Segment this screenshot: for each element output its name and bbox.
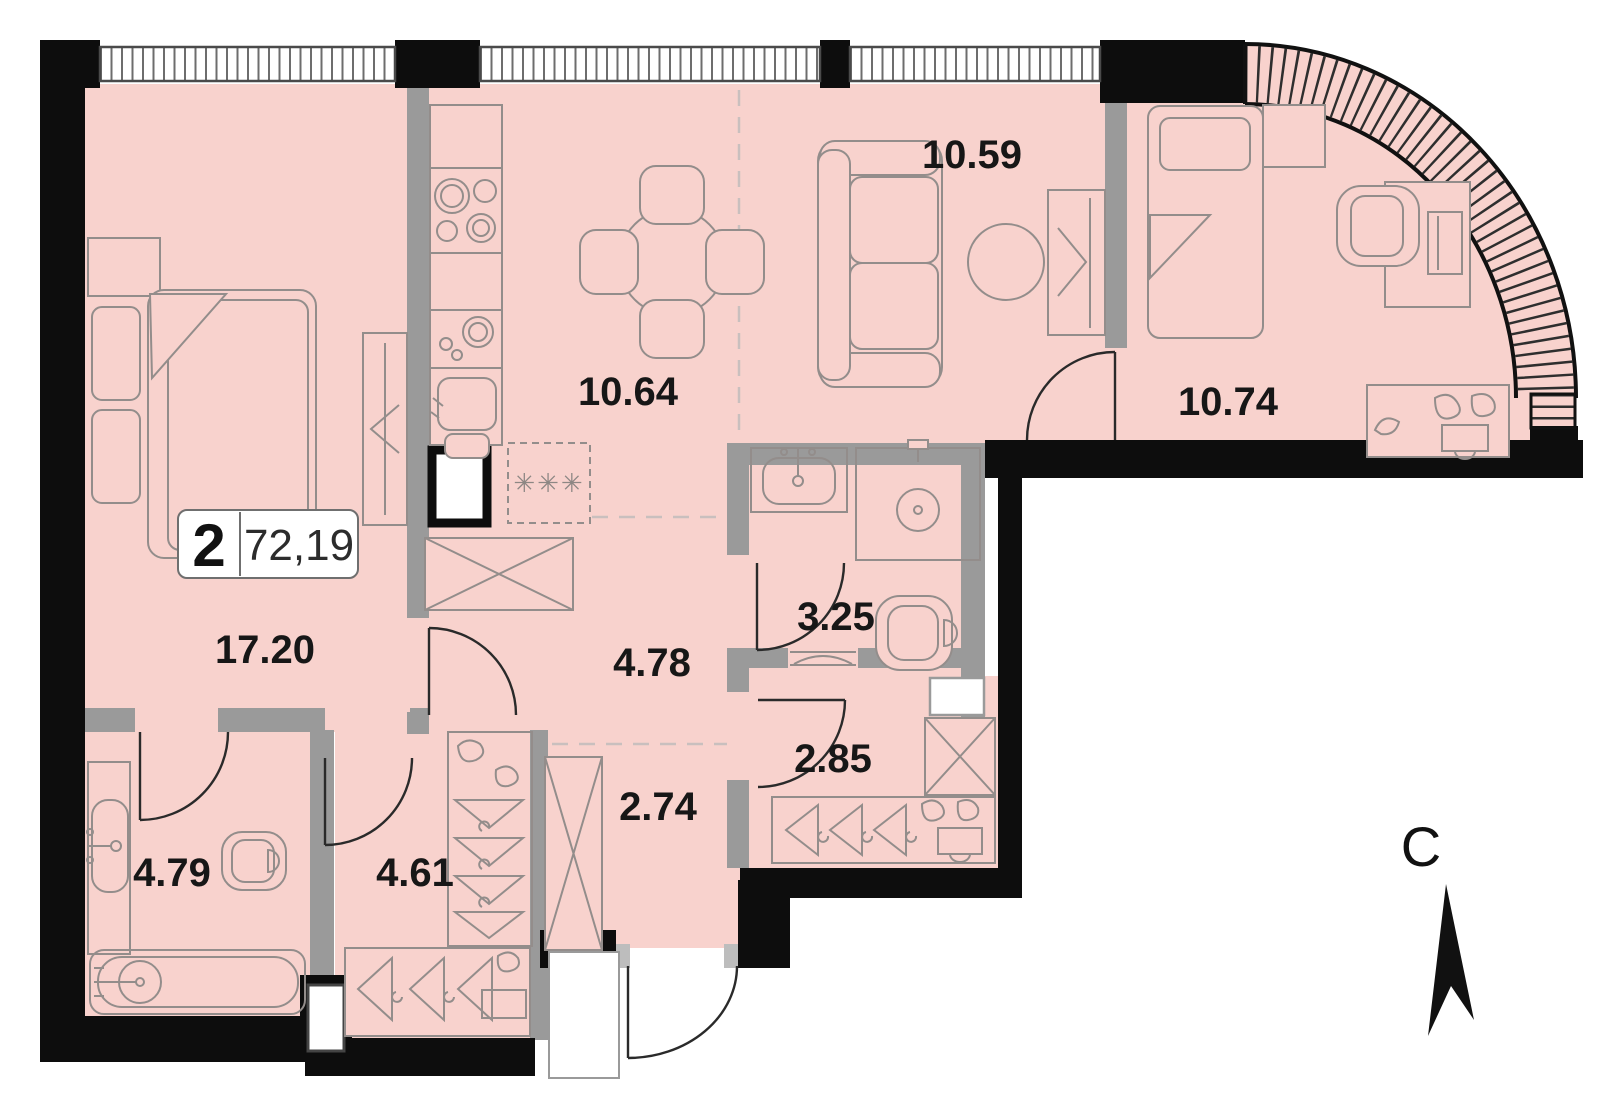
floor-plan-svg: ✳✳✳ [0, 0, 1620, 1104]
sofa [818, 141, 942, 387]
label-hall: 2.85 [794, 737, 872, 781]
floor-plan: ✳✳✳ [0, 0, 1620, 1104]
nightstand [92, 410, 140, 503]
furniture-hall [772, 797, 995, 863]
wall-bottom-bathroom [40, 1016, 312, 1062]
niche-bath [308, 985, 344, 1051]
badge-room-count: 2 [192, 512, 225, 579]
wall-shower-left-1 [727, 443, 749, 555]
closet [88, 238, 160, 296]
wall-hall-left [727, 780, 749, 868]
vent-shaft-corridor [425, 538, 573, 610]
north-indicator: С [1401, 815, 1474, 1036]
toilet [222, 832, 286, 890]
wall-bedroom-bottom-1 [85, 708, 135, 732]
chair [706, 230, 764, 294]
wall-top-pier-3 [820, 40, 850, 88]
desk-chair [1337, 186, 1419, 266]
wall-top-pier-4 [1100, 40, 1245, 103]
label-corridor: 4.78 [613, 641, 691, 685]
wardrobe-clothes [1367, 385, 1509, 459]
door-entrance [628, 966, 737, 1058]
wall-bedroom-bottom-2 [218, 708, 325, 732]
label-kitchen: 10.64 [578, 370, 679, 414]
wall-shower-bottom-1 [749, 648, 788, 668]
window-living [850, 47, 1100, 81]
label-bathroom: 4.79 [133, 851, 211, 895]
closet-bottom [345, 948, 530, 1036]
label-bedroom-left: 17.20 [215, 628, 315, 672]
vent-shaft-hall [925, 718, 995, 795]
niche-entrance [549, 952, 619, 1078]
apartment-badge: 2 72,19 [178, 510, 358, 579]
wall-hall-bottom [740, 868, 1022, 898]
nightstand [1263, 105, 1325, 167]
chair [580, 230, 638, 294]
wardrobe [1048, 190, 1105, 335]
chair [640, 166, 704, 224]
wall-bathroom-wardrobe [310, 730, 334, 975]
toilet [876, 596, 957, 670]
wardrobe [363, 333, 407, 525]
wall-bedroom-bottom-3 [410, 708, 429, 732]
wall-left [40, 40, 85, 1062]
label-wardrobe: 4.61 [376, 851, 454, 895]
wall-right-below-window [1530, 426, 1578, 478]
wall-top-pier-2 [395, 40, 480, 88]
entrance-jamb-right [724, 944, 738, 968]
label-bedroom-right: 10.74 [1178, 380, 1279, 424]
north-arrow-icon [1428, 884, 1474, 1036]
label-entry-hall: 2.74 [619, 785, 698, 829]
label-living: 10.59 [922, 133, 1022, 177]
window-kitchen [480, 47, 820, 81]
laptop [1428, 212, 1462, 274]
wall-shower-left-2 [727, 648, 749, 692]
kitchen-shaft [432, 450, 487, 523]
fridge-stars: ✳✳✳ [513, 469, 584, 499]
wall-middle-right [998, 470, 1022, 898]
niche-hall [930, 678, 984, 715]
badge-total-area: 72,19 [244, 521, 354, 570]
wall-living-bedroomright [1105, 103, 1127, 348]
window-bedroom-left [100, 47, 395, 81]
north-label: С [1401, 815, 1441, 878]
vent-shaft-entry [545, 757, 602, 950]
nightstand [92, 307, 140, 400]
label-shower-room: 3.25 [797, 595, 875, 639]
chair [640, 300, 704, 358]
